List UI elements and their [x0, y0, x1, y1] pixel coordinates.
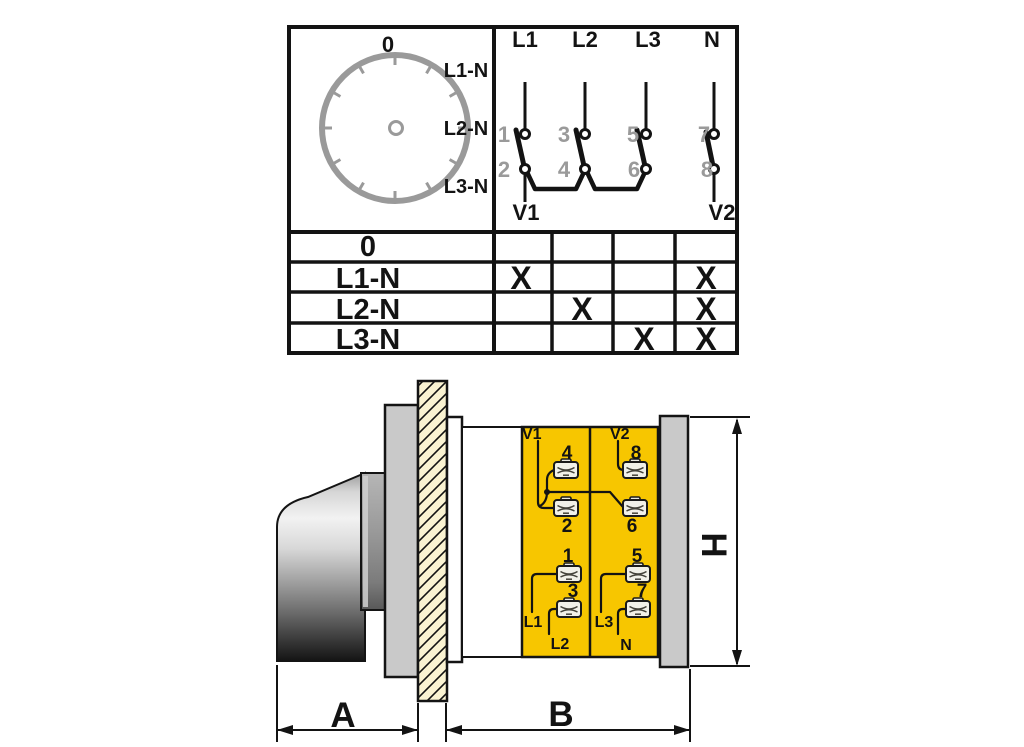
dial-position-l3n-label: L3-N: [444, 176, 488, 198]
dial-position-l1n-label: L1-N: [444, 60, 488, 82]
dial-position-l2n-label: L2-N: [444, 118, 488, 140]
arrow-h-top: [732, 418, 742, 434]
contact-number-5: 5: [627, 122, 639, 147]
block-label-l3: L3: [595, 614, 614, 631]
table-mark-r1c1: X: [510, 260, 532, 296]
dim-label-b: B: [548, 695, 573, 734]
handle-stem-highlight: [363, 476, 368, 607]
terminal-2: [554, 497, 578, 516]
block-label-v2: V2: [610, 426, 630, 443]
mounting-panel-hatch: [418, 381, 447, 701]
block-label-v1: V1: [522, 426, 542, 443]
table-row-label-l3n: L3-N: [336, 324, 400, 356]
contact-number-8: 8: [701, 157, 713, 182]
block-terminal-number-6: 6: [627, 516, 638, 537]
block-terminal-number-1: 1: [563, 546, 574, 567]
input-terminal-n-label: N: [704, 27, 720, 52]
table-row-label-l2n: L2-N: [336, 294, 400, 326]
output-v2-label: V2: [709, 200, 736, 225]
selector-dial: 0 L1-N L2-N L3-N: [322, 32, 488, 201]
front-plate: [385, 405, 418, 677]
schematic-feed-lines: [525, 82, 714, 202]
contact-blades: [516, 130, 713, 166]
input-terminal-l3-label: L3: [635, 27, 661, 52]
contact-number-7: 7: [698, 122, 710, 147]
block-label-l1: L1: [524, 614, 543, 631]
dial-position-0-label: 0: [382, 32, 394, 57]
contact-number-1: 1: [498, 122, 510, 147]
handle-knob: [277, 473, 365, 661]
contact-nodes: [521, 130, 719, 174]
block-terminal-number-2: 2: [562, 516, 573, 537]
table-row-label-0: 0: [360, 231, 376, 263]
block-terminal-number-5: 5: [632, 546, 643, 567]
dial-hub: [390, 122, 403, 135]
position-diagram: 0 L1-N L2-N L3-N L1: [289, 27, 737, 357]
switch-side-view: V1 V2 4 2 8 6 1 3 5 7 L1 L2 L3 N: [277, 381, 750, 742]
contact-number-6: 6: [628, 157, 640, 182]
contact-number-3: 3: [558, 122, 570, 147]
block-terminal-number-8: 8: [631, 443, 642, 464]
table-row-label-l1n: L1-N: [336, 263, 400, 295]
input-terminal-l2-label: L2: [572, 27, 598, 52]
contact-schematic: L1 L2 L3 N 1 3 5 7 2 4 6 8 V1 V2: [498, 27, 736, 225]
contact-number-2: 2: [498, 157, 510, 182]
block-terminal-number-4: 4: [562, 443, 573, 464]
arrow-b-left: [446, 725, 462, 735]
truth-table: 0 L1-N L2-N L3-N X X X X X X: [289, 231, 737, 357]
block-label-l2: L2: [551, 636, 570, 653]
arrow-h-bottom: [732, 650, 742, 666]
block-terminal-number-3: 3: [568, 581, 579, 602]
output-v1-label: V1: [513, 200, 540, 225]
table-mark-r3c4: X: [695, 321, 717, 357]
arrow-a-left: [277, 725, 293, 735]
terminal-6: [623, 497, 647, 516]
rear-plate: [660, 416, 688, 667]
table-mark-r3c3: X: [633, 321, 655, 357]
arrow-b-right: [674, 725, 690, 735]
mounting-flange: [447, 417, 462, 662]
contact-number-4: 4: [558, 157, 571, 182]
switch-body-front: [462, 427, 522, 657]
input-terminal-l1-label: L1: [512, 27, 538, 52]
dim-label-h: H: [694, 532, 733, 557]
figure-svg: 0 L1-N L2-N L3-N L1: [0, 0, 1024, 747]
arrow-a-right: [402, 725, 418, 735]
wire-junction-dot: [544, 489, 550, 495]
dim-label-a: A: [330, 696, 355, 735]
block-terminal-number-7: 7: [637, 581, 648, 602]
block-label-n: N: [620, 637, 632, 654]
rotary-cam-switch-figure: 0 L1-N L2-N L3-N L1: [0, 0, 1024, 747]
table-mark-r2c2: X: [571, 291, 593, 327]
